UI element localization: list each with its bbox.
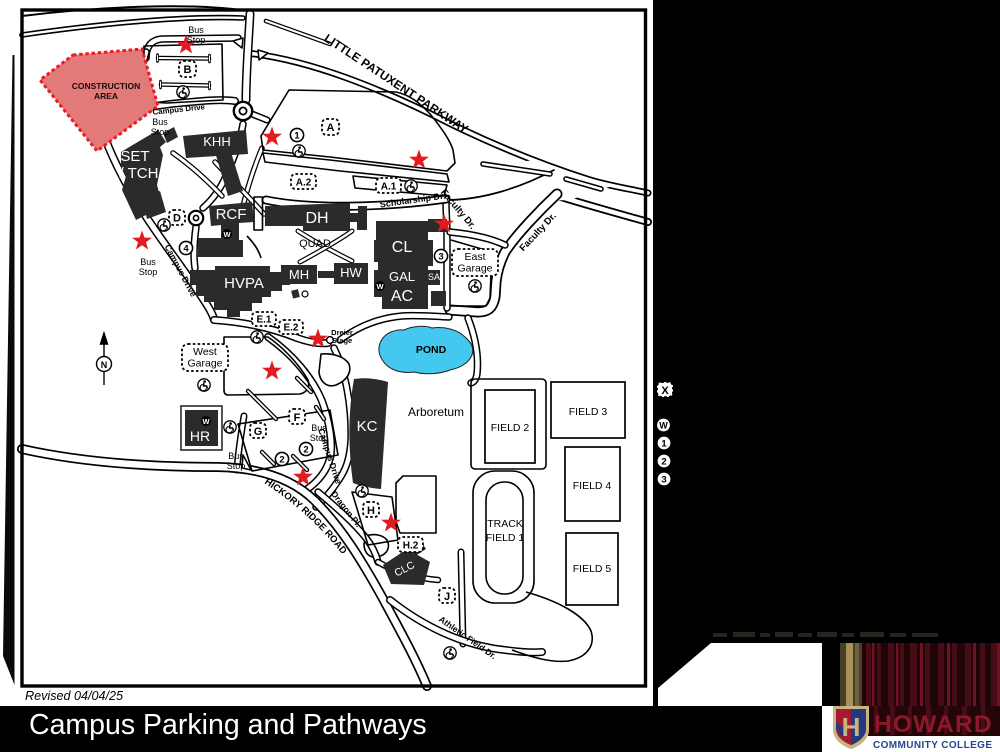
- svg-text:SA: SA: [428, 272, 440, 282]
- svg-text:Stop: Stop: [151, 127, 170, 137]
- svg-text:E.2: E.2: [283, 323, 298, 334]
- svg-text:CONSTRUCTION: CONSTRUCTION: [72, 81, 140, 91]
- svg-text:Garage: Garage: [457, 263, 492, 275]
- svg-text:TRACK: TRACK: [487, 518, 523, 530]
- svg-text:HOWARD: HOWARD: [874, 711, 993, 738]
- svg-text:A.2: A.2: [296, 178, 312, 189]
- svg-text:AC: AC: [391, 288, 413, 305]
- svg-text:Stop: Stop: [139, 267, 158, 277]
- svg-text:SET: SET: [120, 148, 149, 165]
- svg-text:Bus: Bus: [140, 257, 156, 267]
- svg-text:Arboretum: Arboretum: [408, 405, 464, 419]
- svg-text:B: B: [184, 64, 192, 76]
- svg-text:2: 2: [279, 455, 284, 466]
- svg-text:KC: KC: [357, 418, 378, 435]
- svg-text:E.1: E.1: [256, 315, 271, 326]
- svg-text:W: W: [659, 421, 668, 431]
- svg-text:Stage: Stage: [332, 336, 352, 345]
- svg-text:3: 3: [661, 475, 666, 486]
- svg-text:D: D: [173, 213, 181, 225]
- svg-text:West: West: [193, 346, 217, 358]
- svg-text:GAL: GAL: [389, 269, 415, 284]
- svg-text:DH: DH: [305, 210, 328, 227]
- svg-text:2: 2: [303, 445, 308, 456]
- svg-text:HVPA: HVPA: [224, 275, 264, 292]
- svg-text:MH: MH: [289, 267, 309, 282]
- svg-text:KHH: KHH: [203, 134, 230, 149]
- svg-text:H.2: H.2: [403, 541, 419, 552]
- svg-text:FIELD 4: FIELD 4: [573, 480, 612, 492]
- svg-text:FIELD 1: FIELD 1: [486, 532, 525, 544]
- svg-text:1: 1: [661, 439, 667, 450]
- svg-text:HR: HR: [190, 428, 210, 444]
- svg-text:Campus Parking and Pathways: Campus Parking and Pathways: [29, 709, 427, 741]
- svg-text:/ TCH: / TCH: [120, 165, 159, 182]
- svg-text:1: 1: [294, 131, 300, 142]
- svg-text:FIELD 5: FIELD 5: [573, 563, 612, 575]
- svg-text:Revised 04/04/25: Revised 04/04/25: [25, 689, 124, 703]
- svg-text:2: 2: [661, 457, 666, 468]
- svg-text:COMMUNITY COLLEGE: COMMUNITY COLLEGE: [873, 740, 992, 751]
- svg-text:Stop: Stop: [227, 461, 246, 471]
- svg-text:CL: CL: [392, 239, 413, 256]
- svg-text:A.1: A.1: [381, 182, 397, 193]
- svg-text:FIELD 2: FIELD 2: [491, 422, 530, 434]
- svg-text:3: 3: [438, 252, 443, 263]
- svg-text:Garage: Garage: [187, 358, 222, 370]
- svg-text:A: A: [327, 122, 335, 134]
- svg-text:J: J: [444, 591, 450, 603]
- svg-text:X: X: [661, 385, 669, 397]
- svg-text:AREA: AREA: [94, 91, 118, 101]
- svg-text:H: H: [842, 712, 861, 742]
- svg-text:HW: HW: [340, 265, 362, 280]
- svg-text:F: F: [294, 412, 301, 424]
- svg-text:Bus: Bus: [152, 117, 168, 127]
- svg-text:East: East: [464, 251, 485, 263]
- svg-text:Bus: Bus: [188, 25, 204, 35]
- svg-text:Stop: Stop: [187, 35, 206, 45]
- svg-text:Bus: Bus: [228, 451, 244, 461]
- svg-text:H: H: [367, 505, 375, 517]
- svg-text:RCF: RCF: [216, 206, 247, 223]
- svg-text:G: G: [254, 426, 263, 438]
- svg-text:POND: POND: [416, 344, 447, 356]
- svg-text:N: N: [101, 360, 108, 370]
- svg-text:FIELD 3: FIELD 3: [569, 406, 608, 418]
- svg-text:4: 4: [183, 244, 189, 255]
- svg-text:QUAD: QUAD: [299, 238, 331, 250]
